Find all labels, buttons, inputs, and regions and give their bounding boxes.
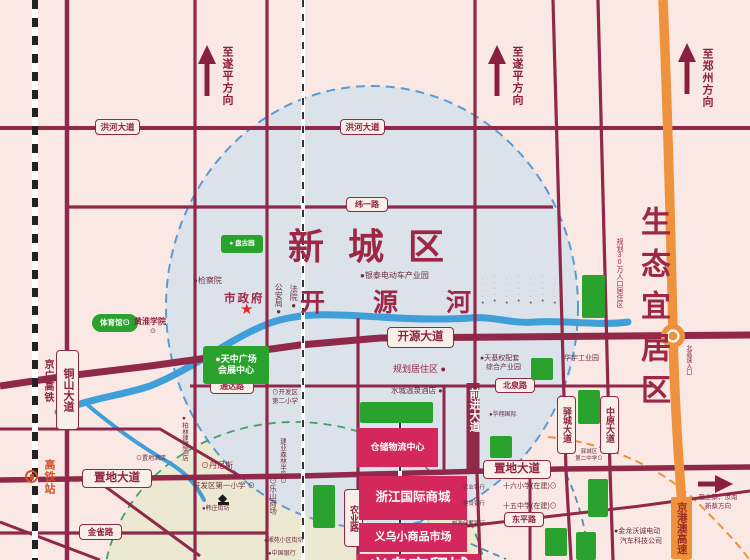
label-procuratorate: ●检察院 (193, 276, 222, 285)
park-block-3 (360, 402, 433, 423)
label-planned-residential: 规划居住区 ● (393, 364, 446, 374)
label-yintai-park: ●银泰电动车产业园 (360, 271, 429, 280)
label-second-middle-2: 第二中学⊙ (572, 456, 606, 462)
label-tianjiquan-2: 综合产业园 (486, 364, 521, 372)
label-bank-of-china: ●中国银行 (268, 551, 296, 558)
road-label-honghe-east: 洪河大道 (340, 119, 385, 135)
label-postal-bank: 邮政储蓄银行 (452, 521, 485, 527)
direction-suiping-2: 至遂平方向 (509, 46, 525, 121)
star-icon: ★ (240, 300, 253, 318)
road-label-dongping: 东平路 (504, 512, 544, 527)
label-dev-first-primary: 开发区第一小学 ⊙ (193, 482, 255, 491)
tianzhong-plaza-box: ●天中广场 会展中心 (203, 346, 269, 384)
label-huayu-industrial: 华宇工业园 (564, 355, 599, 363)
expressway-name-label: 京港澳高速 (671, 497, 692, 559)
road-label-honghe-west: 洪河大道 (95, 119, 140, 135)
direction-east-line1: 至上蔡、汝南 (688, 494, 748, 501)
river-name: 开源河 (300, 283, 519, 319)
direction-suiping-1: 至遂平方向 (219, 46, 235, 121)
train-station-icon (25, 470, 38, 483)
district-new-city: 新城区 (288, 218, 468, 270)
direction-east-line2: 新蔡方向 (688, 503, 748, 510)
park-block-1 (582, 275, 605, 318)
stadium-box: 体育馆⊙ (92, 314, 138, 332)
yiwu-mall-partial-box: 义乌商贸城 (357, 554, 480, 560)
road-label-tongshan: 铜山大道 (56, 350, 79, 430)
riverside-marker-3: ····● (503, 276, 509, 316)
railway-label-jingguang: 京广高铁 (40, 359, 55, 419)
label-jianye-forest: 建业森林半岛⊙ (278, 438, 285, 484)
road-label-jinque: 金雀路 (79, 524, 122, 540)
label-public-security: 公安局● (274, 283, 283, 325)
road-label-kaiyuan: 开源大道 (387, 327, 454, 348)
label-xiangyuan-blocks: ●湘苑小区街坊 (264, 538, 304, 545)
park-block-8 (545, 528, 567, 556)
label-huaxiang: ●华翔国际 (489, 412, 517, 419)
label-sixteenth-primary: 十六小学(在建)⊙ (503, 483, 557, 491)
label-bolin-hotel: ●柏林建国酒店 (180, 415, 187, 477)
station-label-gaotie: 高铁站 (41, 459, 57, 503)
road-label-yicheng: 驿城大道 (557, 396, 576, 454)
road-label-beiquan: 北泉路 (495, 378, 535, 393)
label-second-middle-1: 驿城区 (572, 449, 606, 455)
label-agri-bank: 农业银行 (463, 485, 485, 491)
label-hotspring-hotel: 水城温泉酒店 ● (391, 387, 443, 396)
city-planning-map: 新城区 开源河 生态宜居区 规划30万人口居住区 至遂平方向 至遂平方向 至郑州… (0, 0, 750, 560)
label-huanghuai-dot: ⊙ (150, 328, 156, 336)
label-fifteenth-middle: 十五中学(在建)⊙ (503, 503, 557, 511)
graduation-cap-icon: ◆ (218, 491, 229, 505)
park-block-7 (588, 479, 608, 517)
road-label-zhidi-east: 置地大道 (483, 460, 551, 479)
warehouse-logistics-box: 仓储物流中心 (357, 428, 438, 467)
label-zhidi-hotel: ⊙置地酒店 (136, 456, 166, 463)
zhejiang-mall-box: 浙江国际商城 (359, 476, 467, 520)
riverside-marker-4: ····● (515, 274, 521, 314)
park-block-6 (578, 390, 600, 424)
expressway-north-entry: 北高速入口 (684, 345, 691, 400)
riverside-marker-1: ····● (479, 276, 485, 316)
district-eco-live: 生态宜居区 (630, 206, 674, 416)
label-construction-bank: 建设银行 (463, 501, 485, 507)
riverside-marker-5: ····● (527, 276, 533, 316)
park-block-9 (576, 532, 596, 560)
label-jinlong-company-2: 汽车科技公司 (620, 538, 662, 546)
direction-zhengzhou: 至郑州方向 (699, 48, 715, 123)
park-block-4 (490, 436, 512, 458)
road-label-zhidi-west: 置地大道 (82, 469, 152, 488)
label-dev-second-primary-1: ⊙开发区 (268, 389, 302, 396)
road-label-qianjin: 前进大道 (466, 388, 482, 460)
yiwu-market-box: 义乌小商品市场 (359, 523, 467, 552)
park-block-2 (531, 358, 553, 380)
label-court: 法院● (289, 285, 298, 321)
tianzhong-line2: 会展中心 (218, 365, 254, 376)
park-block-5 (313, 485, 335, 528)
label-leshan-market: ⊙乐山商场 (268, 477, 277, 533)
label-huanghuai-college: 黄淮学院 (134, 317, 166, 326)
tianzhong-line1: ●天中广场 (215, 354, 256, 365)
riverside-marker-7: ····● (551, 276, 557, 316)
label-jinlong-company-1: ●金龙沃诚电动 (614, 528, 660, 536)
planned-population-note: 规划30万人口居住区 (615, 238, 623, 338)
label-hanzhuang: ●韩庄街坊 (202, 506, 230, 513)
road-label-zhongyuan: 中原大道 (600, 396, 619, 454)
riverside-marker-6: ····● (539, 274, 545, 314)
label-dev-second-primary-2: 第二小学 (268, 398, 302, 405)
riverside-marker-2: ····● (491, 274, 497, 314)
label-dennis: ⊙丹尼斯 (201, 461, 233, 470)
pangu-park-box: ● 盘古园 (221, 235, 263, 253)
label-tianjiquan-1: ●天基权配套 (480, 355, 519, 363)
road-label-weiyi: 纬一路 (346, 197, 388, 212)
